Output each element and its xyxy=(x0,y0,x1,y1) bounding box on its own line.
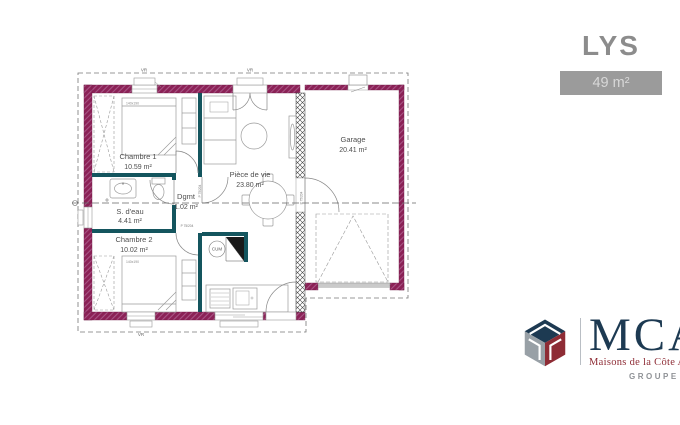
room-label-chambre1: Chambre 1 xyxy=(119,152,156,161)
room-label-dgmt: Dgmt xyxy=(177,192,196,201)
room-area-sdeau: 4.41 m² xyxy=(118,218,142,225)
brand-group-label: GROUPE HEXAOM xyxy=(629,372,680,381)
window-tag: VR xyxy=(141,68,148,73)
room-area-chambre1: 10.59 m² xyxy=(124,164,152,171)
french-door-icon xyxy=(233,78,267,110)
door-tag: P 75/204 xyxy=(181,224,194,228)
mca-logo-icon xyxy=(518,315,572,369)
room-label-sdeau: S. d'eau xyxy=(116,207,143,216)
kitchen-cabinets-icon xyxy=(204,96,236,164)
area-badge: 49 m² xyxy=(560,71,662,95)
room-area-garage: 20.41 m² xyxy=(339,147,367,154)
floor-plan: 140x190 140x190 CUM xyxy=(70,60,420,340)
plan-title: LYS xyxy=(560,30,662,62)
bed-size-label: 140x190 xyxy=(126,102,139,106)
floor-drain-icon xyxy=(105,198,109,202)
water-heater-label: CUM xyxy=(212,247,222,252)
toilet-icon xyxy=(152,178,165,200)
bed-size-label: 140x190 xyxy=(126,260,139,264)
bed-icon xyxy=(122,256,196,312)
brand-block: MCA Maisons de la Côte Atlantique GROUPE… xyxy=(518,315,680,381)
page: 140x190 140x190 CUM xyxy=(0,0,680,425)
entry-door-icon xyxy=(266,282,296,320)
brand-name: MCA xyxy=(589,313,680,357)
garage-door-icon xyxy=(316,214,390,288)
room-label-garage: Garage xyxy=(340,135,365,144)
room-area-chambre2: 10.02 m² xyxy=(120,247,148,254)
sink-icon xyxy=(110,179,136,198)
kitchen-counter-icon xyxy=(206,285,288,312)
door-tag: P 75/204 xyxy=(198,184,202,197)
room-label-chambre2: Chambre 2 xyxy=(115,235,152,244)
bed-icon xyxy=(122,98,196,155)
window-tag: VR xyxy=(247,68,254,73)
brand-tagline: Maisons de la Côte Atlantique xyxy=(589,357,680,368)
brand-divider xyxy=(580,318,581,365)
garage-service-door-icon xyxy=(348,75,368,92)
room-area-dgmt: 1.02 m² xyxy=(174,204,198,211)
room-label-piecedevie: Pièce de vie xyxy=(230,170,271,179)
door-tag: P 75/204 xyxy=(300,191,304,204)
room-area-piecedevie: 23.80 m² xyxy=(236,182,264,189)
round-rug-icon xyxy=(241,123,267,149)
radiator-icon xyxy=(289,116,296,158)
window-tag: VR xyxy=(138,332,145,337)
title-block: LYS 49 m² xyxy=(560,30,662,95)
